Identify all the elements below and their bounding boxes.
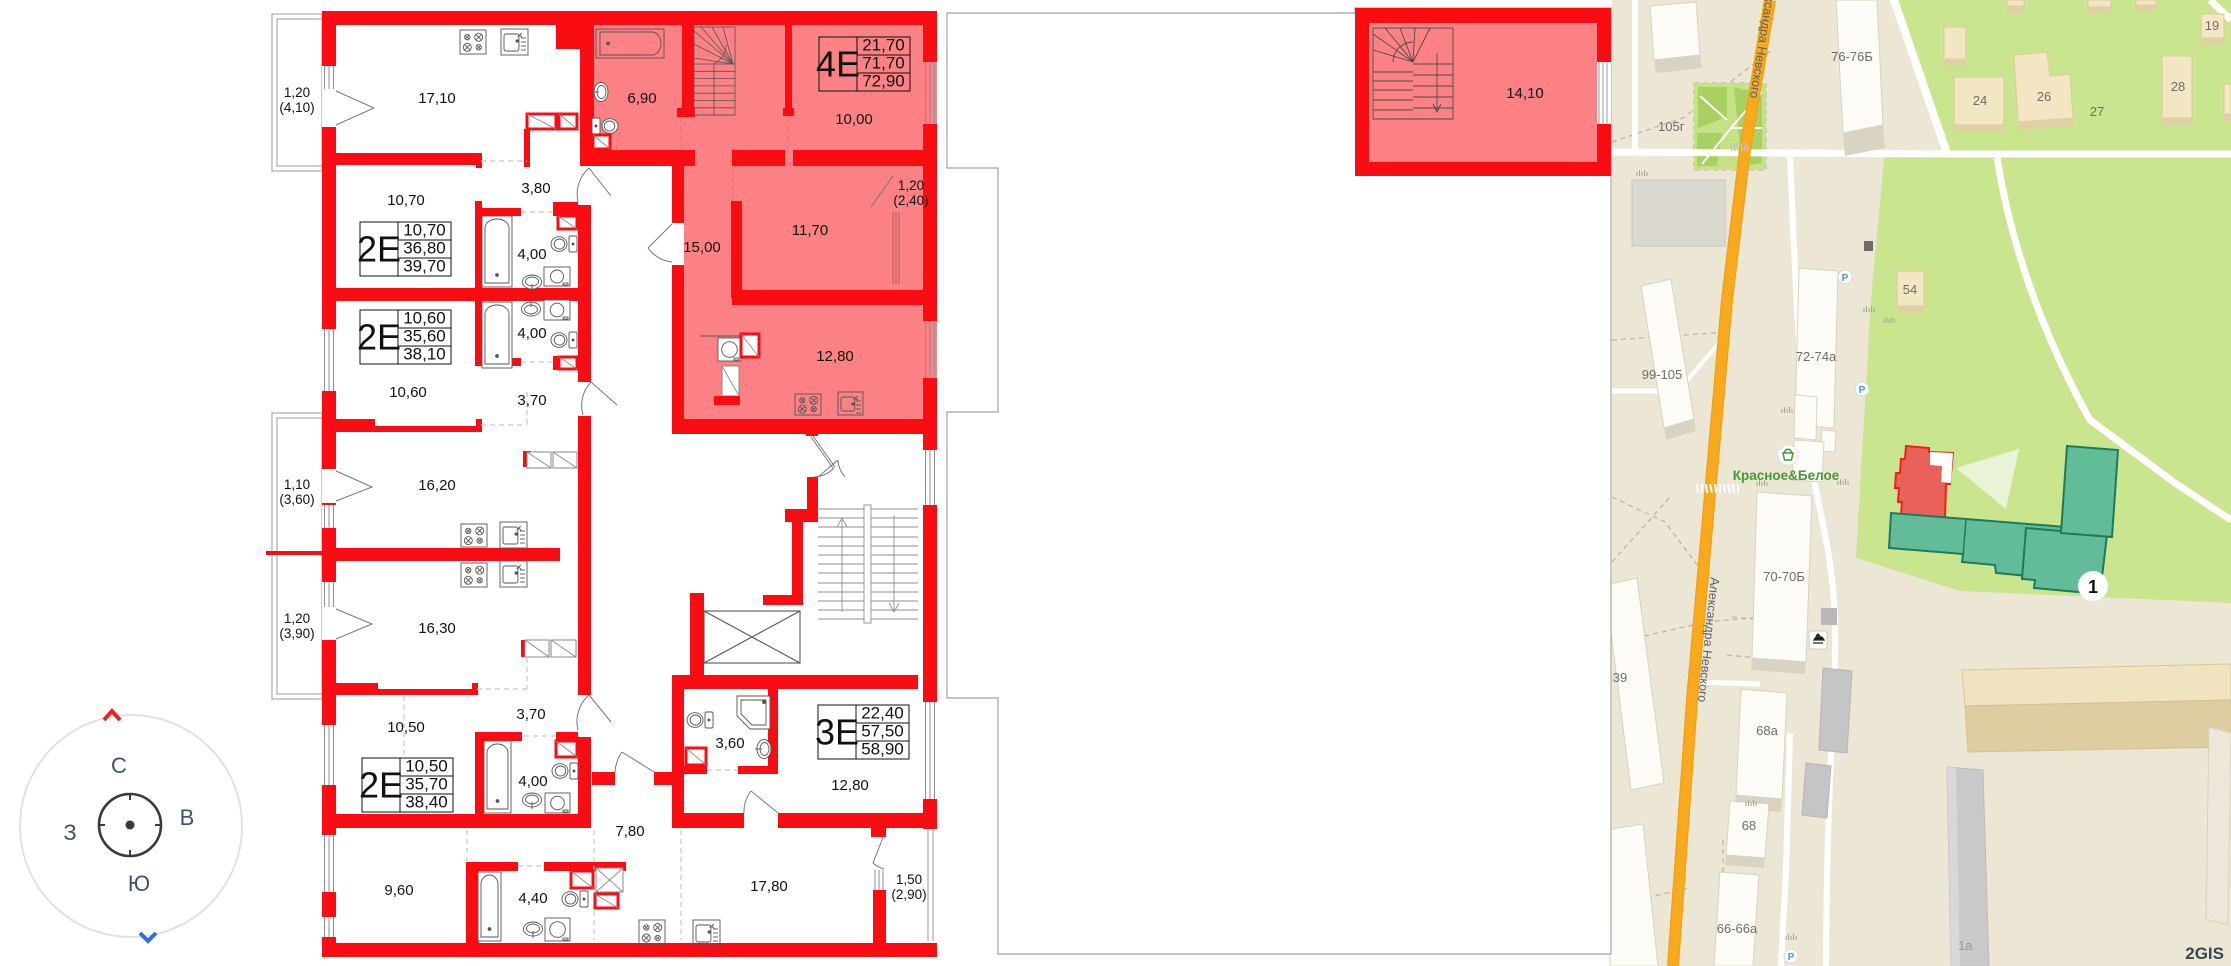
svg-text:39: 39 (1613, 670, 1627, 685)
svg-text:6,90: 6,90 (627, 90, 656, 107)
svg-text:27: 27 (2090, 104, 2104, 119)
svg-text:68: 68 (1742, 818, 1756, 833)
svg-text:1а: 1а (1958, 938, 1973, 953)
svg-text:19: 19 (2205, 18, 2219, 33)
svg-text:38,10: 38,10 (403, 345, 446, 364)
svg-text:3,60: 3,60 (715, 735, 744, 752)
svg-text:1: 1 (2088, 577, 2098, 597)
svg-text:3,70: 3,70 (516, 706, 545, 723)
svg-text:21,70: 21,70 (862, 36, 905, 55)
svg-text:35,70: 35,70 (405, 775, 448, 794)
svg-text:С: С (111, 753, 127, 778)
svg-text:P: P (1842, 273, 1849, 284)
svg-text:17,80: 17,80 (750, 878, 788, 895)
svg-text:10,60: 10,60 (403, 309, 446, 328)
svg-text:28: 28 (2171, 79, 2185, 94)
svg-text:99-105: 99-105 (1642, 367, 1682, 382)
svg-text:10,50: 10,50 (387, 719, 425, 736)
svg-text:36,80: 36,80 (403, 239, 446, 258)
svg-text:66-66а: 66-66а (1717, 921, 1758, 936)
svg-text:2Е: 2Е (357, 229, 401, 270)
svg-text:16,30: 16,30 (418, 620, 456, 637)
svg-text:2Е: 2Е (359, 765, 403, 806)
svg-text:38,40: 38,40 (405, 793, 448, 812)
svg-text:14,10: 14,10 (1506, 85, 1544, 102)
svg-text:P: P (1788, 952, 1795, 963)
svg-text:9,60: 9,60 (384, 882, 413, 899)
svg-text:26: 26 (2037, 89, 2051, 104)
svg-text:72,90: 72,90 (862, 72, 905, 91)
svg-text:P: P (1859, 385, 1866, 396)
svg-text:71,70: 71,70 (862, 54, 905, 73)
svg-text:Ю: Ю (128, 871, 150, 896)
svg-text:(2,90): (2,90) (891, 887, 926, 902)
svg-text:(2,40): (2,40) (893, 193, 928, 208)
svg-text:7,80: 7,80 (615, 823, 644, 840)
svg-text:2GIS: 2GIS (2185, 944, 2224, 963)
svg-text:4,00: 4,00 (517, 246, 546, 263)
svg-text:2Е: 2Е (357, 317, 401, 358)
svg-text:В: В (180, 805, 195, 830)
svg-text:15,00: 15,00 (683, 239, 721, 256)
svg-text:39,70: 39,70 (403, 257, 446, 276)
svg-text:57,50: 57,50 (861, 722, 904, 741)
svg-text:24: 24 (1973, 93, 1987, 108)
svg-text:3,70: 3,70 (517, 392, 546, 409)
svg-text:1,20: 1,20 (284, 85, 310, 100)
svg-text:12,80: 12,80 (831, 777, 869, 794)
svg-text:17,10: 17,10 (418, 90, 456, 107)
svg-text:1,20: 1,20 (898, 178, 924, 193)
svg-text:22,40: 22,40 (861, 704, 904, 723)
svg-text:76-76Б: 76-76Б (1831, 49, 1873, 64)
svg-text:4,00: 4,00 (517, 325, 546, 342)
svg-text:68а: 68а (1756, 723, 1778, 738)
svg-text:35,60: 35,60 (403, 327, 446, 346)
svg-text:3Е: 3Е (815, 712, 859, 753)
svg-text:10,60: 10,60 (389, 384, 427, 401)
svg-text:Красное&Белое: Красное&Белое (1733, 468, 1840, 483)
svg-text:4,40: 4,40 (518, 890, 547, 907)
svg-text:12,80: 12,80 (816, 348, 854, 365)
svg-text:3,80: 3,80 (521, 180, 550, 197)
svg-text:10,70: 10,70 (403, 221, 446, 240)
svg-text:70-70Б: 70-70Б (1763, 569, 1805, 584)
svg-text:4Е: 4Е (816, 44, 860, 85)
svg-text:16,20: 16,20 (418, 477, 456, 494)
svg-text:72-74а: 72-74а (1796, 349, 1837, 364)
svg-text:(4,10): (4,10) (279, 100, 314, 115)
svg-text:10,00: 10,00 (835, 111, 873, 128)
svg-text:54: 54 (1903, 282, 1917, 297)
svg-text:1,50: 1,50 (896, 872, 922, 887)
svg-text:11,70: 11,70 (792, 222, 828, 239)
svg-text:(3,60): (3,60) (279, 492, 314, 507)
svg-text:58,90: 58,90 (861, 740, 904, 759)
svg-text:4,00: 4,00 (518, 773, 547, 790)
svg-text:(3,90): (3,90) (279, 626, 314, 641)
svg-text:10,70: 10,70 (387, 192, 425, 209)
svg-text:105г: 105г (1658, 119, 1685, 134)
svg-text:10,50: 10,50 (405, 757, 448, 776)
svg-text:1,20: 1,20 (284, 611, 310, 626)
svg-text:З: З (63, 820, 76, 845)
svg-text:1,10: 1,10 (284, 477, 310, 492)
